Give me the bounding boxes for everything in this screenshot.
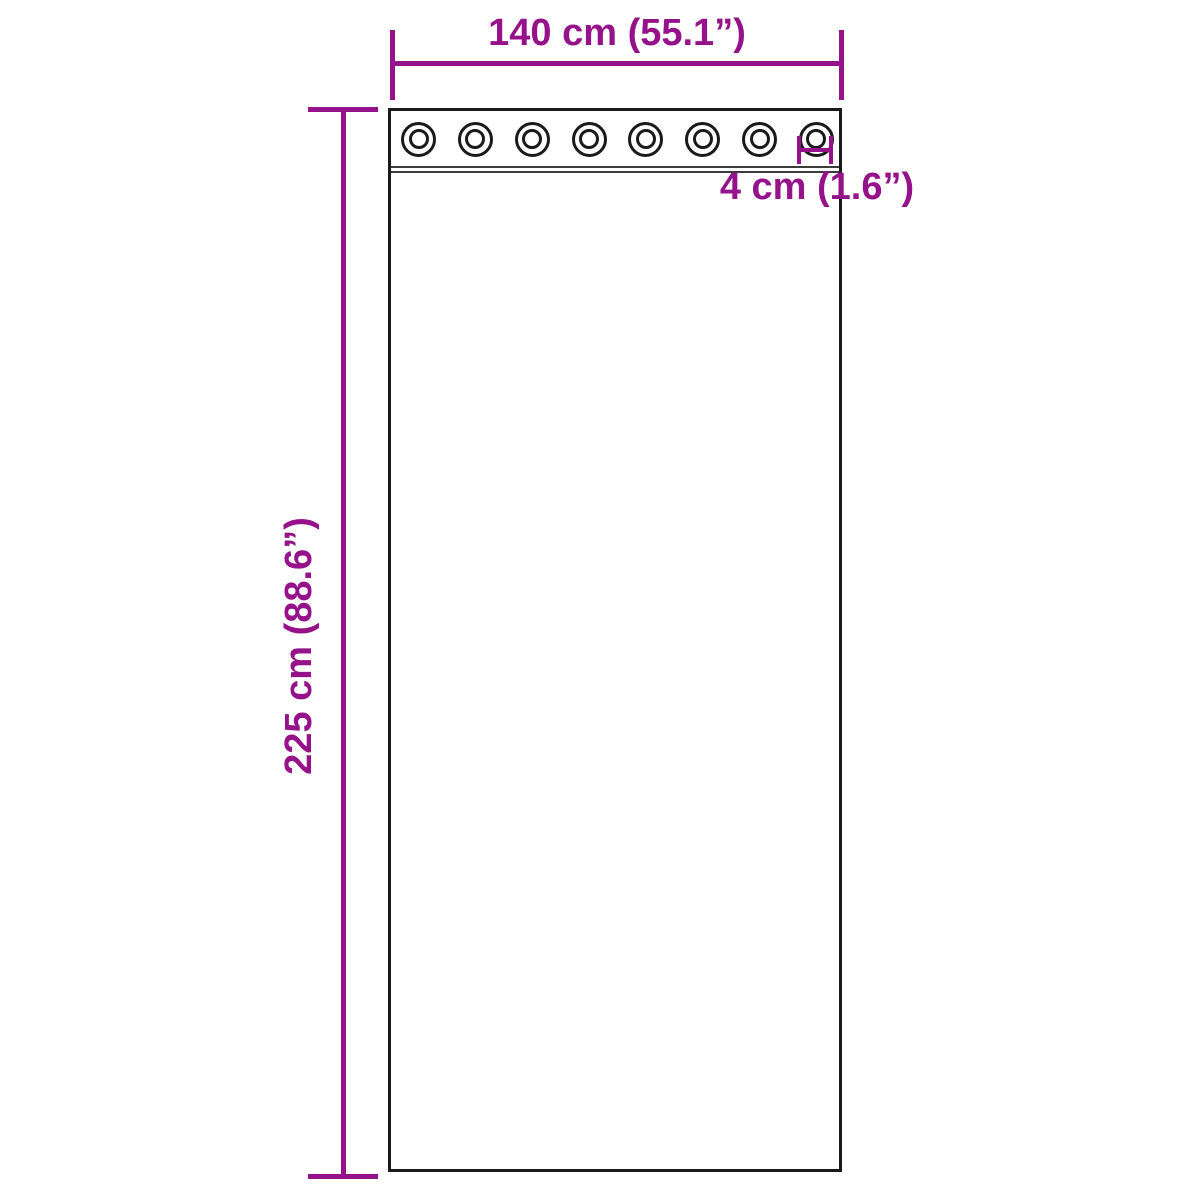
width-dimension-label: 140 cm (55.1”) [392,14,842,52]
height-dimension-tick-bottom [308,1174,378,1179]
grommet-inner-ring [465,129,485,149]
grommet-icon [742,122,777,157]
width-dimension-line [392,61,842,66]
grommet-inner-ring [636,129,656,149]
grommet-icon [401,122,436,157]
grommet-inner-ring [750,129,770,149]
grommet-inner-ring [409,129,429,149]
height-dimension-tick-top [308,107,378,112]
grommet-icon [458,122,493,157]
grommet-dimension-label: 4 cm (1.6”) [667,168,967,206]
grommet-row [401,121,834,157]
grommet-icon [515,122,550,157]
curtain-panel [388,108,842,1172]
product-dimension-diagram: 140 cm (55.1”) 225 cm (88.6”) 4 cm (1.6”… [0,0,1200,1200]
grommet-icon [685,122,720,157]
grommet-icon [628,122,663,157]
grommet-icon [572,122,607,157]
grommet-inner-ring [522,129,542,149]
height-dimension-label: 225 cm (88.6”) [280,396,320,896]
grommet-inner-ring [806,129,826,149]
grommet-dimension-bar [797,148,833,152]
grommet-inner-ring [693,129,713,149]
grommet-inner-ring [579,129,599,149]
height-dimension-line [341,107,346,1179]
